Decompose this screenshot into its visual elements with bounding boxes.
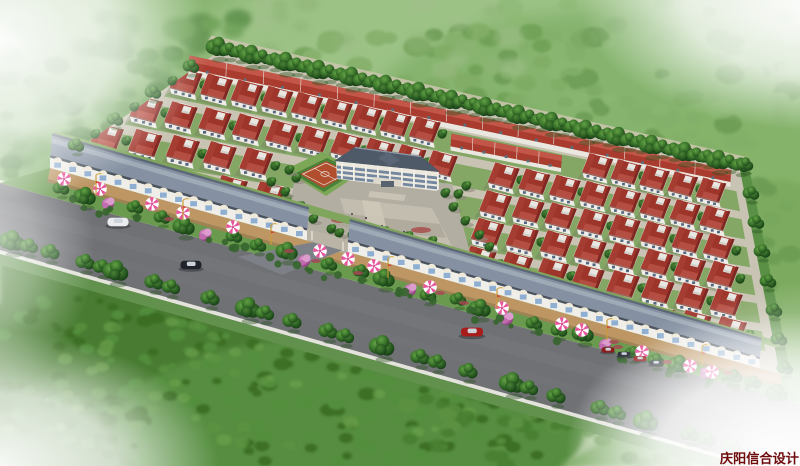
svg-text:庆阳信合设计: 庆阳信合设计	[720, 450, 799, 466]
